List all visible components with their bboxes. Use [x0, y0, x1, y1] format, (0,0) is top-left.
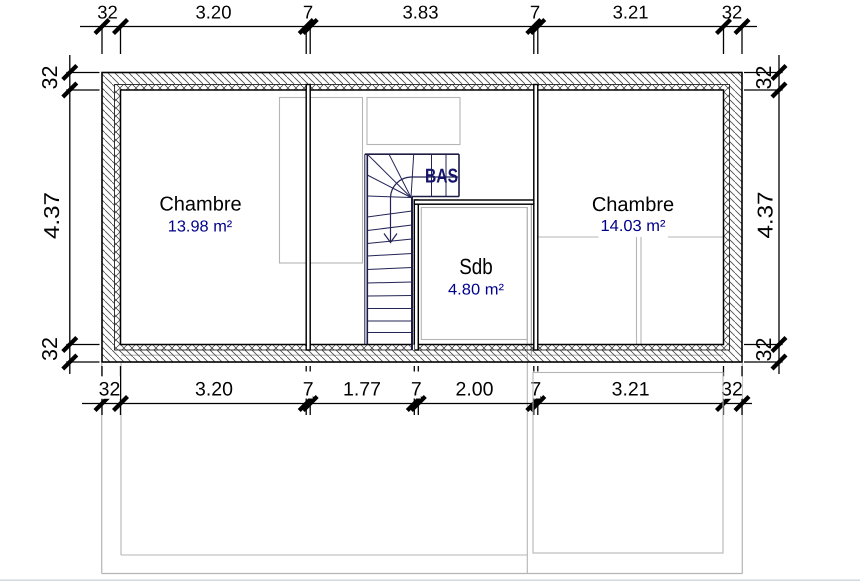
svg-text:7: 7 — [530, 379, 541, 401]
svg-text:7: 7 — [303, 379, 314, 401]
svg-text:32: 32 — [722, 2, 743, 23]
svg-text:32: 32 — [97, 2, 118, 23]
svg-text:2.00: 2.00 — [456, 379, 494, 401]
svg-text:32: 32 — [752, 338, 776, 362]
svg-text:7: 7 — [530, 2, 540, 23]
svg-text:32: 32 — [99, 379, 121, 401]
svg-text:7: 7 — [411, 379, 422, 401]
svg-text:7: 7 — [303, 2, 313, 23]
svg-text:3.20: 3.20 — [195, 379, 233, 401]
svg-text:Chambre: Chambre — [592, 194, 674, 216]
svg-text:32: 32 — [38, 66, 62, 90]
svg-text:13.98 m²: 13.98 m² — [168, 219, 233, 236]
svg-text:14.03 m²: 14.03 m² — [601, 218, 667, 235]
svg-text:3.21: 3.21 — [612, 379, 650, 401]
svg-text:4.37: 4.37 — [40, 192, 64, 239]
svg-text:4.80 m²: 4.80 m² — [448, 282, 504, 299]
svg-text:3.83: 3.83 — [402, 2, 438, 23]
svg-text:32: 32 — [752, 66, 776, 90]
svg-text:BAS: BAS — [425, 166, 458, 188]
svg-text:3.21: 3.21 — [613, 2, 649, 23]
svg-text:32: 32 — [38, 337, 62, 361]
svg-text:Sdb: Sdb — [459, 254, 493, 279]
svg-text:Chambre: Chambre — [159, 194, 241, 216]
svg-text:32: 32 — [721, 379, 743, 401]
svg-text:4.37: 4.37 — [754, 192, 778, 239]
svg-text:3.20: 3.20 — [195, 2, 231, 23]
svg-text:1.77: 1.77 — [343, 379, 381, 401]
